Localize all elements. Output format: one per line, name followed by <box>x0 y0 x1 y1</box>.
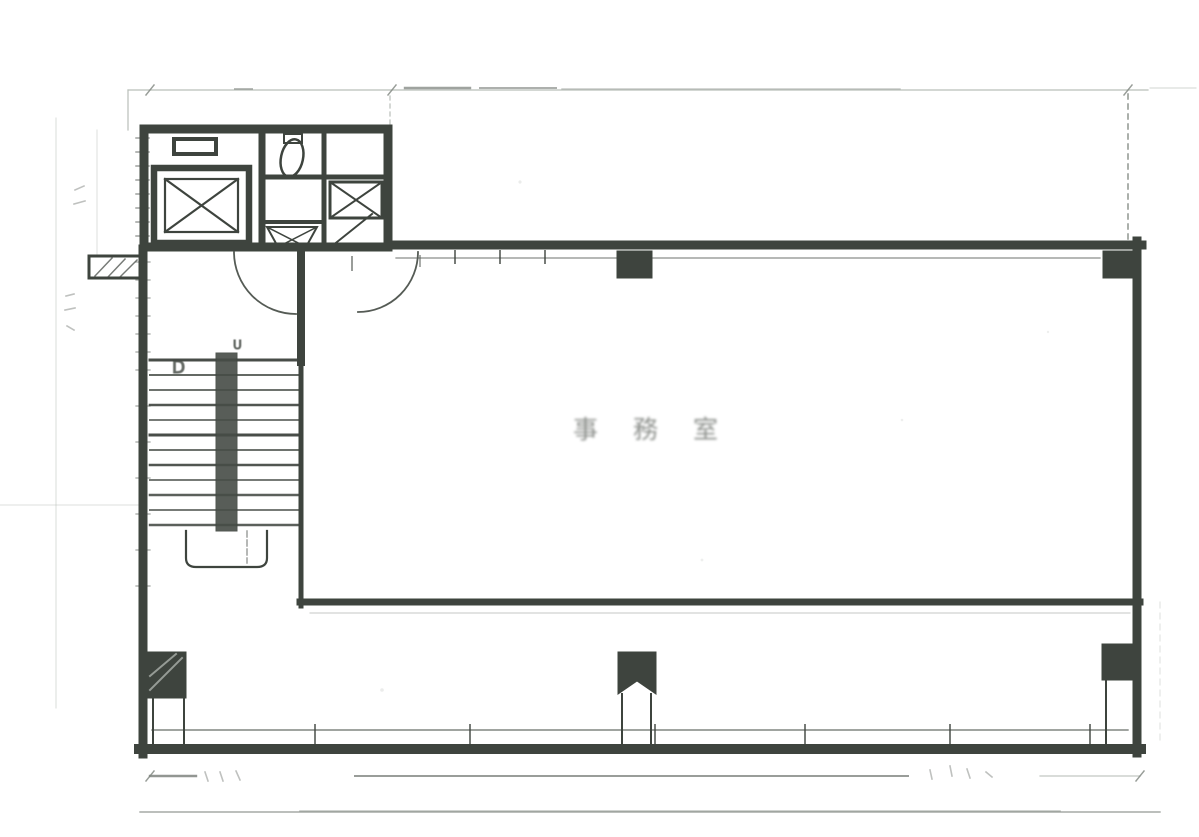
structural-column-icon <box>1103 251 1138 278</box>
stair-run-with-return-icon: D U <box>150 338 298 567</box>
shaft-x-box-icon <box>330 182 382 246</box>
elevator-door-icon <box>174 139 216 154</box>
service-block <box>136 129 388 247</box>
stair-down-label: D <box>172 358 185 378</box>
stair-return-landing <box>186 531 267 567</box>
structural-column-icon <box>147 652 186 748</box>
elevator-shaft-x-icon <box>154 139 249 243</box>
exterior-walls <box>89 241 1142 754</box>
floor-plan-drawing: D U 事務室 <box>0 0 1199 837</box>
stair-stringer <box>216 353 237 531</box>
wall-ledge <box>89 256 141 278</box>
structural-columns <box>147 251 1139 748</box>
structural-column-icon <box>617 251 652 278</box>
stair-up-label: U <box>233 338 242 352</box>
dimension-lines <box>0 85 1196 812</box>
floor-plan-page: D U 事務室 <box>0 0 1199 837</box>
toilet-fixture-icon <box>277 134 306 179</box>
structural-column-icon <box>618 652 656 748</box>
office-room-label: 事務室 <box>573 415 753 444</box>
door-swing-arc-icon <box>234 252 420 314</box>
illegible-dimension-figures <box>65 186 992 781</box>
